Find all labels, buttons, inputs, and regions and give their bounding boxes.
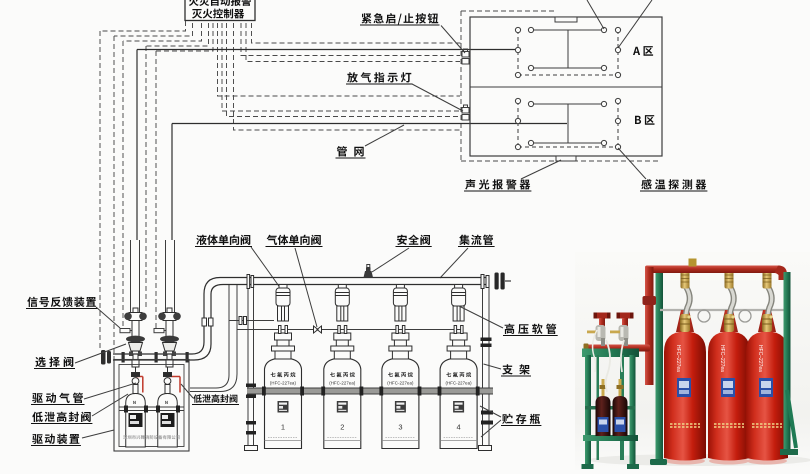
svg-text:4: 4 [457, 423, 461, 432]
svg-text:HFC–227ea: HFC–227ea [757, 345, 763, 372]
svg-text:1: 1 [281, 423, 285, 432]
svg-text:HFC–227ea: HFC–227ea [675, 345, 681, 372]
svg-text:(HFC-227ea): (HFC-227ea) [387, 380, 414, 385]
svg-text:HFC–227ea: HFC–227ea [719, 345, 725, 372]
svg-text:(HFC-227ea): (HFC-227ea) [446, 380, 473, 385]
svg-text:2: 2 [340, 423, 344, 432]
svg-text:3: 3 [398, 423, 402, 432]
svg-text:(HFC-227ea): (HFC-227ea) [329, 380, 356, 385]
svg-text:(HFC-227ea): (HFC-227ea) [270, 380, 297, 385]
